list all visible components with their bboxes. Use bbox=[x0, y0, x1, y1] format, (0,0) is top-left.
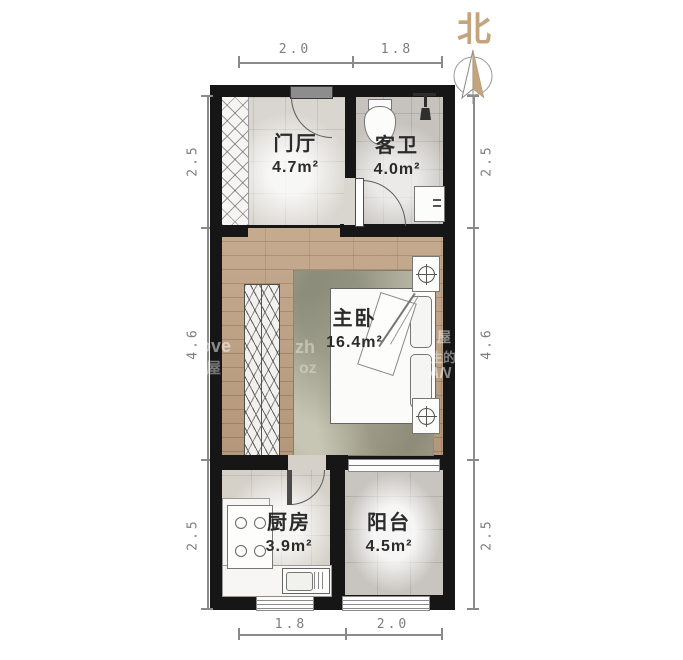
wall-hall-bedroom-left bbox=[210, 225, 248, 237]
hall-name: 门厅 bbox=[253, 133, 338, 156]
dim-left-1: 2.5 bbox=[186, 136, 201, 186]
ceiling-light-icon bbox=[418, 266, 435, 283]
shower-icon bbox=[412, 92, 440, 128]
balcony-sliding-window bbox=[348, 459, 440, 472]
hall-closet bbox=[222, 97, 249, 225]
nightstand bbox=[412, 398, 440, 434]
wall-bedroom-kitchen-mid bbox=[326, 455, 348, 470]
bathroom-door bbox=[355, 178, 364, 227]
dimension-line-top bbox=[238, 62, 442, 64]
wall-bedroom-kitchen-left bbox=[210, 455, 288, 470]
bedroom-area: 16.4m² bbox=[292, 334, 417, 352]
dimension-line-bottom bbox=[238, 634, 442, 636]
nightstand bbox=[412, 256, 440, 292]
dim-left-3: 2.5 bbox=[186, 510, 201, 560]
dim-tick bbox=[201, 95, 213, 97]
shower-head bbox=[420, 108, 431, 120]
hall-area: 4.7m² bbox=[253, 159, 338, 177]
dim-tick bbox=[467, 227, 479, 229]
wardrobe bbox=[244, 284, 280, 464]
bathroom-name: 客卫 bbox=[357, 135, 437, 158]
room-label-hall: 门厅 4.7m² bbox=[253, 133, 338, 177]
dim-top-2: 1.8 bbox=[372, 42, 422, 57]
sink-vanity-icon bbox=[414, 186, 445, 222]
balcony-window bbox=[342, 596, 430, 611]
dim-tick bbox=[441, 628, 443, 640]
room-label-kitchen: 厨房 3.9m² bbox=[249, 512, 329, 556]
dim-tick bbox=[238, 56, 240, 68]
dim-top-1: 2.0 bbox=[270, 42, 320, 57]
dim-bottom-2: 2.0 bbox=[368, 617, 418, 632]
bathroom-area: 4.0m² bbox=[357, 161, 437, 179]
wall-bedroom-balcony-stub bbox=[438, 455, 455, 470]
kitchen-window bbox=[256, 596, 314, 611]
room-label-bedroom: 主卧 16.4m² bbox=[292, 308, 417, 352]
dim-right-1: 2.5 bbox=[480, 136, 495, 186]
dim-tick bbox=[467, 459, 479, 461]
balcony-name: 阳台 bbox=[349, 512, 429, 535]
kitchen-door bbox=[287, 470, 292, 505]
shower-stem bbox=[424, 96, 427, 107]
dim-tick bbox=[238, 628, 240, 640]
kitchen-name: 厨房 bbox=[249, 512, 329, 535]
kitchen-sink-icon bbox=[282, 568, 330, 594]
dim-bottom-1: 1.8 bbox=[266, 617, 316, 632]
dim-left-2: 4.6 bbox=[186, 319, 201, 369]
dim-right-3: 2.5 bbox=[480, 510, 495, 560]
dimension-line-right bbox=[473, 95, 475, 610]
dim-tick bbox=[441, 56, 443, 68]
room-label-bathroom: 客卫 4.0m² bbox=[357, 135, 437, 179]
compass-north-icon bbox=[448, 46, 500, 104]
floor-plan: 门厅 4.7m² 客卫 4.0m² 主卧 16.4m² 厨房 3.9m² 阳台 … bbox=[0, 0, 683, 660]
kitchen-door-opening bbox=[288, 455, 326, 470]
ceiling-light-icon bbox=[418, 408, 435, 425]
balcony-area: 4.5m² bbox=[349, 538, 429, 556]
sink-basin bbox=[286, 572, 313, 591]
dim-right-2: 4.6 bbox=[480, 319, 495, 369]
room-label-balcony: 阳台 4.5m² bbox=[349, 512, 429, 556]
kitchen-area: 3.9m² bbox=[249, 538, 329, 556]
bedroom-name: 主卧 bbox=[292, 308, 417, 331]
dim-tick bbox=[467, 608, 479, 610]
dimension-line-left bbox=[207, 95, 209, 610]
sink-drainboard bbox=[314, 572, 326, 589]
dim-tick bbox=[352, 56, 354, 68]
dim-tick bbox=[201, 608, 213, 610]
dim-tick bbox=[345, 628, 347, 640]
